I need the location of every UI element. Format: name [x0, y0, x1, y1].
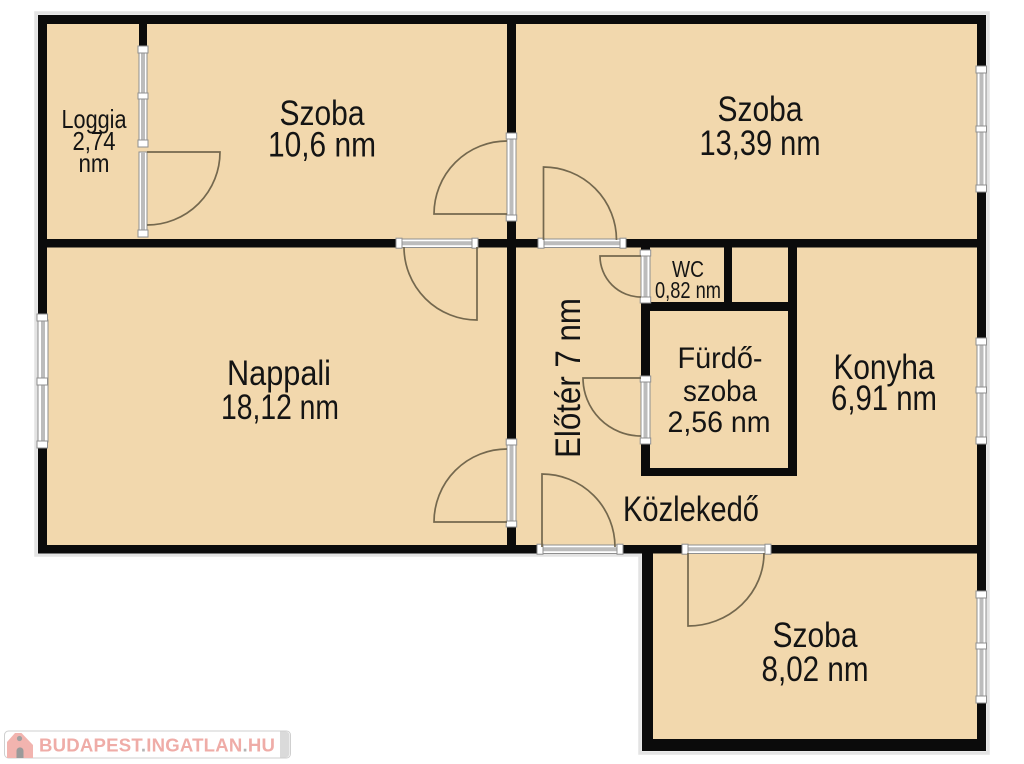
svg-text:10,6 nm: 10,6 nm	[268, 125, 376, 165]
svg-text:6,91 nm: 6,91 nm	[831, 378, 937, 418]
svg-text:2,56 nm: 2,56 nm	[668, 406, 771, 439]
svg-text:Előtér 7 nm: Előtér 7 nm	[548, 298, 588, 458]
svg-text:BUDAPEST.INGATLAN.HU: BUDAPEST.INGATLAN.HU	[39, 735, 275, 756]
svg-text:Közlekedő: Közlekedő	[623, 489, 759, 529]
svg-text:Fürdő-: Fürdő-	[678, 342, 763, 375]
svg-text:0,82 nm: 0,82 nm	[655, 277, 721, 303]
svg-text:13,39 nm: 13,39 nm	[700, 123, 821, 163]
svg-text:8,02 nm: 8,02 nm	[762, 649, 869, 689]
svg-text:nm: nm	[79, 148, 110, 178]
svg-text:szoba: szoba	[683, 375, 757, 408]
svg-text:18,12 nm: 18,12 nm	[221, 387, 339, 427]
